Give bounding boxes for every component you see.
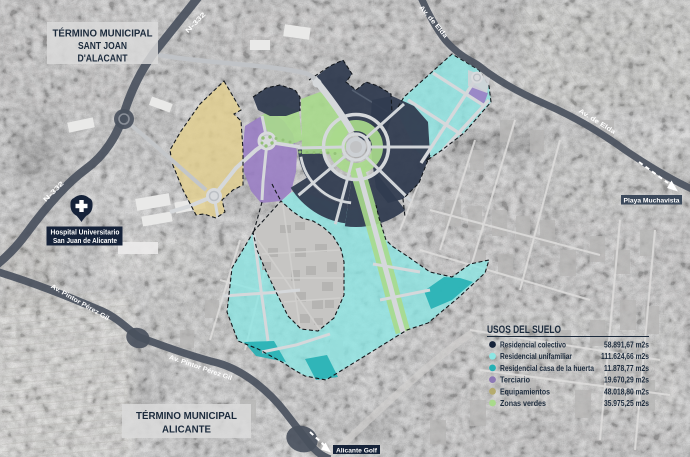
svg-text:D'ALACANT: D'ALACANT bbox=[78, 53, 128, 65]
svg-text:Alicante Golf: Alicante Golf bbox=[336, 447, 378, 454]
svg-text:Residencial casa de la huerta: Residencial casa de la huerta bbox=[500, 364, 595, 373]
svg-text:48.018,80 m2s: 48.018,80 m2s bbox=[604, 387, 650, 396]
svg-text:11.878,77 m2s: 11.878,77 m2s bbox=[604, 364, 650, 373]
svg-text:58.891,67 m2s: 58.891,67 m2s bbox=[604, 341, 650, 350]
svg-text:Terciario: Terciario bbox=[500, 376, 530, 385]
svg-text:111.624,66 m2s: 111.624,66 m2s bbox=[601, 352, 650, 361]
svg-text:ALICANTE: ALICANTE bbox=[162, 424, 211, 436]
svg-text:SANT JOAN: SANT JOAN bbox=[78, 40, 127, 52]
svg-text:19.670,29 m2s: 19.670,29 m2s bbox=[604, 376, 650, 385]
svg-text:35.975,25 m2s: 35.975,25 m2s bbox=[604, 399, 650, 408]
svg-text:Residencial unifamiliar: Residencial unifamiliar bbox=[500, 352, 572, 361]
svg-text:Hospital Universitario: Hospital Universitario bbox=[51, 230, 120, 237]
svg-text:TÉRMINO MUNICIPAL: TÉRMINO MUNICIPAL bbox=[136, 409, 238, 422]
svg-text:Playa Muchavista: Playa Muchavista bbox=[624, 197, 680, 204]
svg-text:Residencial colectivo: Residencial colectivo bbox=[500, 341, 566, 350]
svg-text:Equipamientos: Equipamientos bbox=[500, 387, 551, 396]
svg-text:TÉRMINO MUNICIPAL: TÉRMINO MUNICIPAL bbox=[53, 27, 154, 40]
svg-text:San Juan de Alicante: San Juan de Alicante bbox=[53, 238, 117, 245]
svg-text:Zonas verdes: Zonas verdes bbox=[500, 399, 547, 408]
svg-text:USOS DEL SUELO: USOS DEL SUELO bbox=[487, 324, 561, 336]
